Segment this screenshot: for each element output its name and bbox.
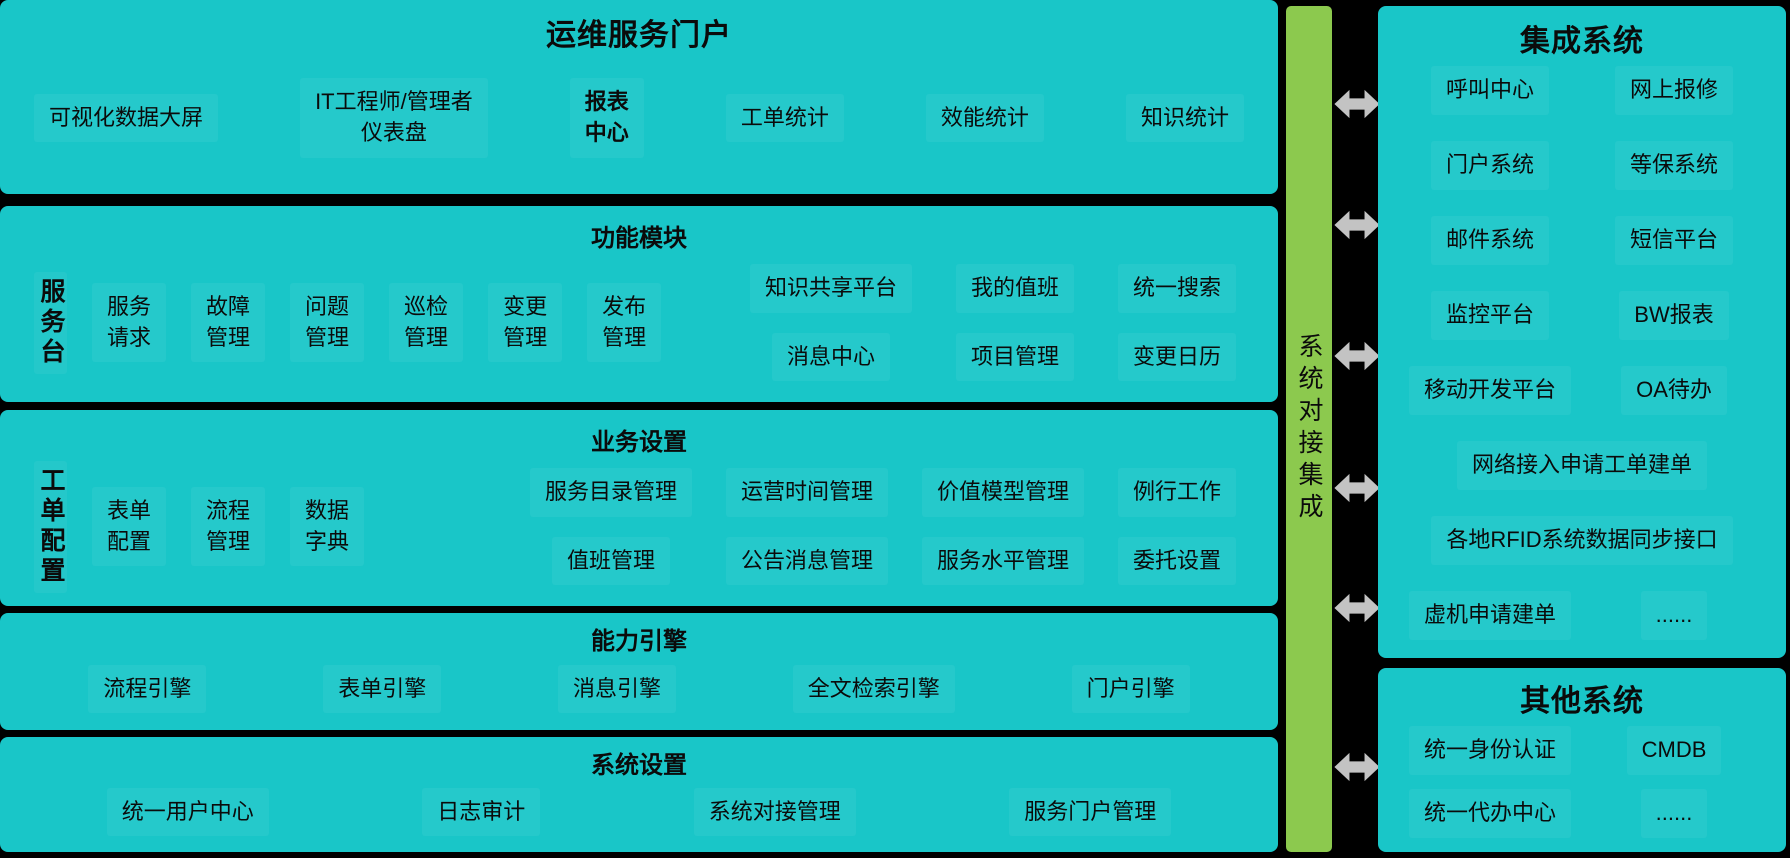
sync-arrow-icon xyxy=(1334,209,1380,241)
capability-engines-box: 能力引擎 流程引擎 表单引擎 消息引擎 全文检索引擎 门户引擎 xyxy=(0,613,1278,730)
business-grid: 服务目录管理 运营时间管理 价值模型管理 例行工作 值班管理 公告消息管理 服务… xyxy=(530,468,1236,586)
integration-row: 虚机申请建单 ...... xyxy=(1398,591,1766,640)
tile-change-calendar: 变更日历 xyxy=(1118,333,1236,382)
tile-knowledge-stats: 知识统计 xyxy=(1126,94,1244,143)
tile-ellipsis: ...... xyxy=(1641,591,1708,640)
tile-problem-mgmt: 问题 管理 xyxy=(290,283,364,363)
modules-row: 服务台 服务 请求 故障 管理 问题 管理 巡检 管理 变更 管理 发布 管理 … xyxy=(0,253,1278,402)
tile-ellipsis: ...... xyxy=(1641,789,1708,838)
tile-classified-protection-system: 等保系统 xyxy=(1615,141,1733,190)
tile-system-integration-mgmt: 系统对接管理 xyxy=(694,788,856,837)
tile-portal-engine: 门户引擎 xyxy=(1072,665,1190,714)
tile-cmdb: CMDB xyxy=(1627,726,1722,775)
system-title: 系统设置 xyxy=(0,737,1278,780)
business-row: 工单配置 表单 配置 流程 管理 数据 字典 服务目录管理 运营时间管理 价值模… xyxy=(0,457,1278,606)
tile-mobile-dev-platform: 移动开发平台 xyxy=(1409,366,1571,415)
ticket-config-label: 工单配置 xyxy=(34,461,67,593)
tile-fulltext-search-engine: 全文检索引擎 xyxy=(793,665,955,714)
business-title: 业务设置 xyxy=(0,410,1278,457)
tile-process-engine: 流程引擎 xyxy=(88,665,206,714)
engines-row: 流程引擎 表单引擎 消息引擎 全文检索引擎 门户引擎 xyxy=(0,656,1278,730)
system-settings-box: 系统设置 统一用户中心 日志审计 系统对接管理 服务门户管理 xyxy=(0,737,1278,852)
integration-row: 门户系统 等保系统 xyxy=(1398,141,1766,190)
tile-log-audit: 日志审计 xyxy=(422,788,540,837)
system-integration-label: 系统对接集成 xyxy=(1291,333,1327,525)
tile-unified-search: 统一搜索 xyxy=(1118,264,1236,313)
tile-my-duty: 我的值班 xyxy=(956,264,1074,313)
others-title: 其他系统 xyxy=(1398,676,1766,720)
tile-it-dashboard: IT工程师/管理者 仪表盘 xyxy=(300,78,488,158)
tile-data-dictionary: 数据 字典 xyxy=(290,487,364,567)
integration-row: 邮件系统 短信平台 xyxy=(1398,216,1766,265)
tile-vm-request-ticket: 虚机申请建单 xyxy=(1409,591,1571,640)
tile-incident-mgmt: 故障 管理 xyxy=(191,283,265,363)
tile-message-engine: 消息引擎 xyxy=(558,665,676,714)
others-row: 统一代办中心 ...... xyxy=(1398,789,1766,838)
tile-efficiency-stats: 效能统计 xyxy=(926,94,1044,143)
integration-row: 移动开发平台 OA待办 xyxy=(1398,366,1766,415)
sync-arrow-icon xyxy=(1334,340,1380,372)
tile-unified-agency-center: 统一代办中心 xyxy=(1409,789,1571,838)
tile-ticket-stats: 工单统计 xyxy=(726,94,844,143)
tile-message-center: 消息中心 xyxy=(772,333,890,382)
tile-service-level-mgmt: 服务水平管理 xyxy=(922,537,1084,586)
system-row: 统一用户中心 日志审计 系统对接管理 服务门户管理 xyxy=(0,780,1278,852)
tile-knowledge-platform: 知识共享平台 xyxy=(750,264,912,313)
engines-title: 能力引擎 xyxy=(0,613,1278,656)
tile-service-portal-mgmt: 服务门户管理 xyxy=(1009,788,1171,837)
integration-row: 呼叫中心 网上报修 xyxy=(1398,66,1766,115)
tile-form-engine: 表单引擎 xyxy=(323,665,441,714)
tile-rfid-sync-interface: 各地RFID系统数据同步接口 xyxy=(1431,516,1732,565)
function-modules-box: 功能模块 服务台 服务 请求 故障 管理 问题 管理 巡检 管理 变更 管理 发… xyxy=(0,206,1278,402)
tile-announcement-mgmt: 公告消息管理 xyxy=(726,537,888,586)
tile-value-model-mgmt: 价值模型管理 xyxy=(922,468,1084,517)
tile-data-screen: 可视化数据大屏 xyxy=(34,94,218,143)
tile-service-catalog-mgmt: 服务目录管理 xyxy=(530,468,692,517)
tile-mail-system: 邮件系统 xyxy=(1431,216,1549,265)
portal-title: 运维服务门户 xyxy=(0,0,1278,54)
tile-change-mgmt: 变更 管理 xyxy=(488,283,562,363)
integration-row-wide: 网络接入申请工单建单 xyxy=(1398,441,1766,490)
modules-grid: 知识共享平台 我的值班 统一搜索 消息中心 项目管理 变更日历 xyxy=(750,264,1236,382)
tile-unified-identity-auth: 统一身份认证 xyxy=(1409,726,1571,775)
sync-arrow-icon xyxy=(1334,751,1380,783)
tile-form-config: 表单 配置 xyxy=(92,487,166,567)
tile-report-center: 报表 中心 xyxy=(570,78,644,158)
tile-service-request: 服务 请求 xyxy=(92,283,166,363)
sync-arrow-icon xyxy=(1334,592,1380,624)
service-desk-label: 服务台 xyxy=(34,272,67,374)
integration-row-wide: 各地RFID系统数据同步接口 xyxy=(1398,516,1766,565)
business-settings-box: 业务设置 工单配置 表单 配置 流程 管理 数据 字典 服务目录管理 运营时间管… xyxy=(0,410,1278,606)
tile-monitoring-platform: 监控平台 xyxy=(1431,291,1549,340)
tile-process-mgmt: 流程 管理 xyxy=(191,487,265,567)
tile-bw-report: BW报表 xyxy=(1619,291,1728,340)
portal-top-row: 可视化数据大屏 IT工程师/管理者 仪表盘 报表 中心 工单统计 效能统计 知识… xyxy=(0,54,1278,194)
integration-title: 集成系统 xyxy=(1398,16,1766,60)
tile-routine-work: 例行工作 xyxy=(1118,468,1236,517)
tile-portal-system: 门户系统 xyxy=(1431,141,1549,190)
integrated-systems-box: 集成系统 呼叫中心 网上报修 门户系统 等保系统 邮件系统 短信平台 监控平台 … xyxy=(1378,6,1786,658)
tile-delegation-settings: 委托设置 xyxy=(1118,537,1236,586)
integration-rows: 呼叫中心 网上报修 门户系统 等保系统 邮件系统 短信平台 监控平台 BW报表 … xyxy=(1398,66,1766,640)
tile-project-mgmt: 项目管理 xyxy=(956,333,1074,382)
tile-call-center: 呼叫中心 xyxy=(1431,66,1549,115)
others-row: 统一身份认证 CMDB xyxy=(1398,726,1766,775)
portal-header-box: 运维服务门户 可视化数据大屏 IT工程师/管理者 仪表盘 报表 中心 工单统计 … xyxy=(0,0,1278,194)
tile-inspection-mgmt: 巡检 管理 xyxy=(389,283,463,363)
tile-duty-mgmt: 值班管理 xyxy=(552,537,670,586)
others-rows: 统一身份认证 CMDB 统一代办中心 ...... xyxy=(1398,726,1766,838)
tile-unified-user-center: 统一用户中心 xyxy=(107,788,269,837)
sync-arrow-icon xyxy=(1334,472,1380,504)
system-integration-bar: 系统对接集成 xyxy=(1286,6,1332,852)
integration-row: 监控平台 BW报表 xyxy=(1398,291,1766,340)
tile-network-access-ticket: 网络接入申请工单建单 xyxy=(1457,441,1707,490)
tile-release-mgmt: 发布 管理 xyxy=(587,283,661,363)
modules-title: 功能模块 xyxy=(0,206,1278,253)
sync-arrow-icon xyxy=(1334,88,1380,120)
tile-oa-todo: OA待办 xyxy=(1621,366,1727,415)
tile-sms-platform: 短信平台 xyxy=(1615,216,1733,265)
tile-online-repair: 网上报修 xyxy=(1615,66,1733,115)
other-systems-box: 其他系统 统一身份认证 CMDB 统一代办中心 ...... xyxy=(1378,668,1786,852)
architecture-diagram: 运维服务门户 可视化数据大屏 IT工程师/管理者 仪表盘 报表 中心 工单统计 … xyxy=(0,0,1790,858)
tile-operation-time-mgmt: 运营时间管理 xyxy=(726,468,888,517)
